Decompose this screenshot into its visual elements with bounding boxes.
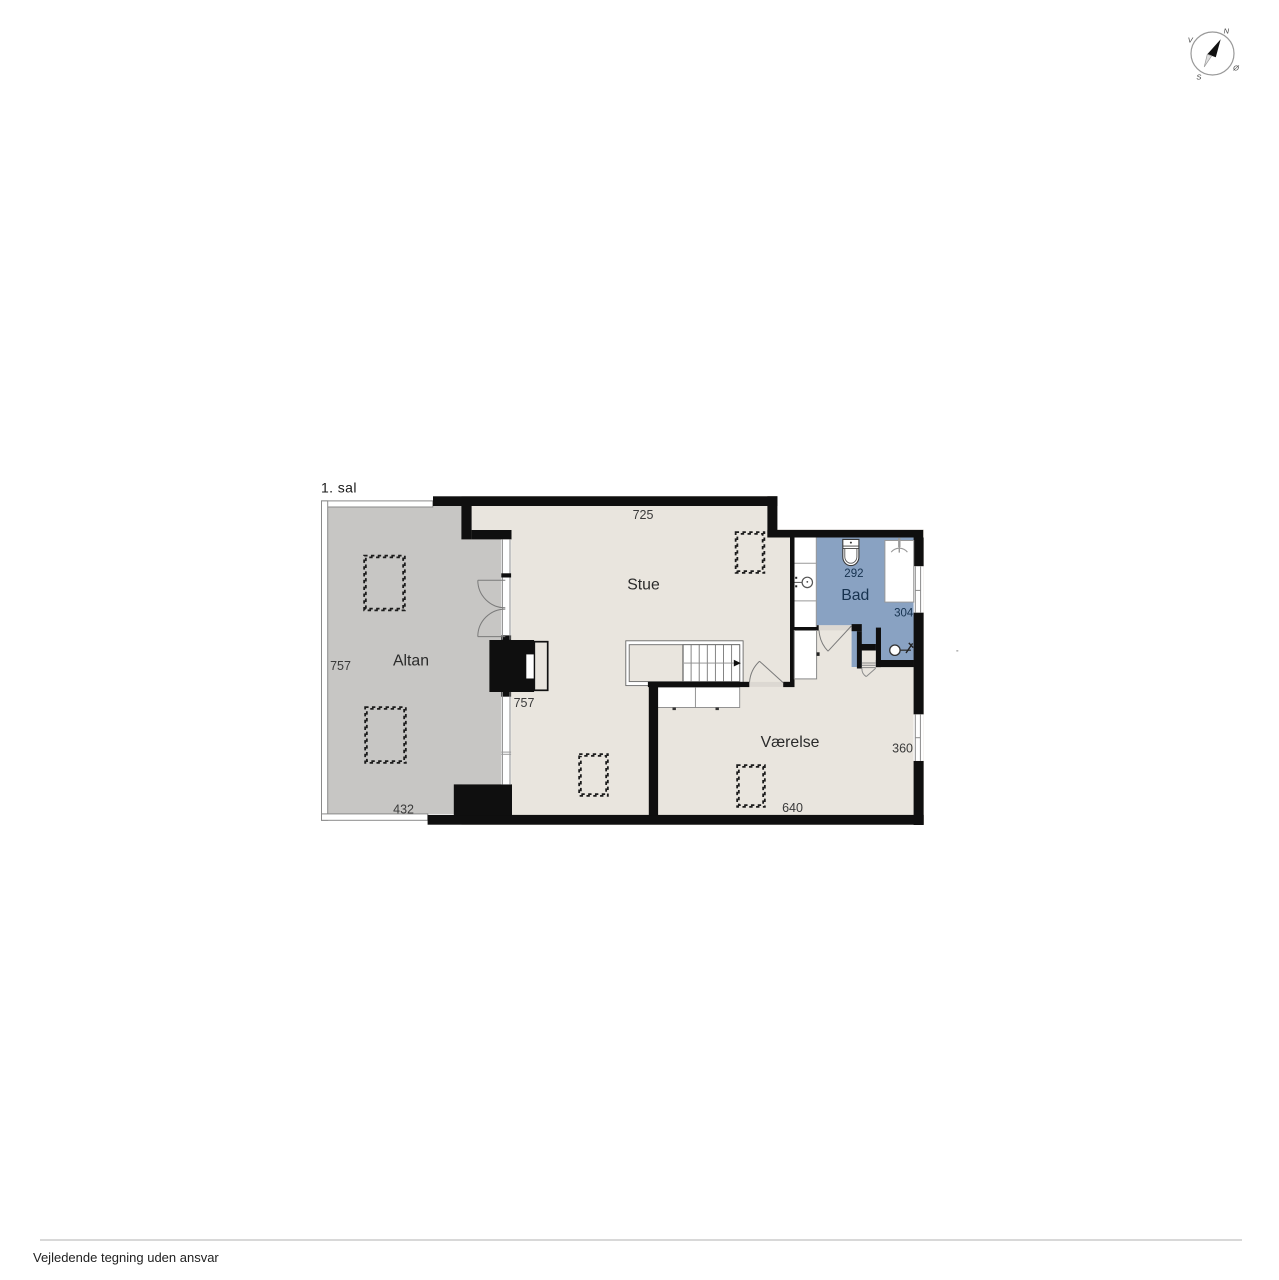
svg-text:Værelse: Værelse (761, 734, 820, 751)
svg-text:Vejledende tegning uden ansvar: Vejledende tegning uden ansvar (33, 1250, 219, 1265)
svg-text:640: 640 (782, 801, 803, 815)
svg-text:1. sal: 1. sal (321, 480, 357, 496)
svg-text:304: 304 (894, 608, 914, 620)
svg-text:Bad: Bad (841, 587, 869, 604)
svg-text:757: 757 (514, 696, 535, 710)
svg-text:432: 432 (393, 803, 414, 817)
svg-text:Ø: Ø (1232, 63, 1240, 72)
svg-text:S: S (1196, 73, 1201, 82)
svg-text:Altan: Altan (393, 653, 429, 670)
svg-text:N: N (1224, 26, 1230, 35)
svg-text:Stue: Stue (627, 577, 660, 594)
svg-text:360: 360 (892, 742, 913, 756)
svg-text:757: 757 (330, 659, 351, 673)
svg-text:292: 292 (844, 568, 863, 580)
svg-text:725: 725 (633, 508, 654, 522)
